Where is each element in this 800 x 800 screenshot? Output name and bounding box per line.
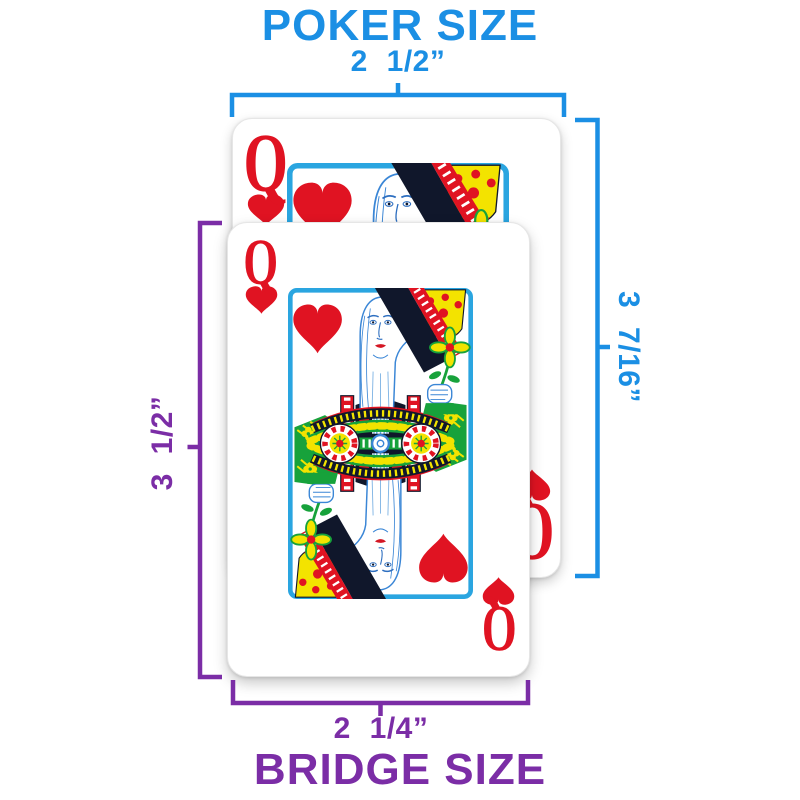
- card-rank: Q: [244, 237, 279, 289]
- poker-size-title: POKER SIZE: [0, 4, 800, 48]
- poker-height-bracket: [575, 120, 610, 576]
- bridge-height-bracket: [188, 223, 223, 677]
- card-corner-index: Q: [239, 237, 283, 315]
- bridge-card: Q Q: [227, 222, 530, 677]
- card-corner-index: Q: [477, 576, 521, 654]
- poker-height-label: 3 7/16”: [613, 287, 643, 407]
- card-size-comparison-infographic: POKER SIZE 2 1/2” 3 7/16” 3 1/2” 2 1/4” …: [0, 0, 800, 800]
- poker-width-label: 2 1/2”: [0, 47, 796, 77]
- poker-width-bracket: [232, 83, 564, 117]
- queen-of-hearts-artwork: [288, 288, 473, 599]
- bridge-width-label: 2 1/4”: [0, 714, 762, 744]
- bridge-height-label: 3 1/2”: [148, 393, 178, 493]
- card-rank: Q: [244, 131, 288, 197]
- bridge-width-bracket: [233, 680, 528, 716]
- card-rank: Q: [482, 602, 517, 654]
- card-corner-index: Q: [241, 131, 291, 227]
- bridge-size-title: BRIDGE SIZE: [0, 748, 800, 792]
